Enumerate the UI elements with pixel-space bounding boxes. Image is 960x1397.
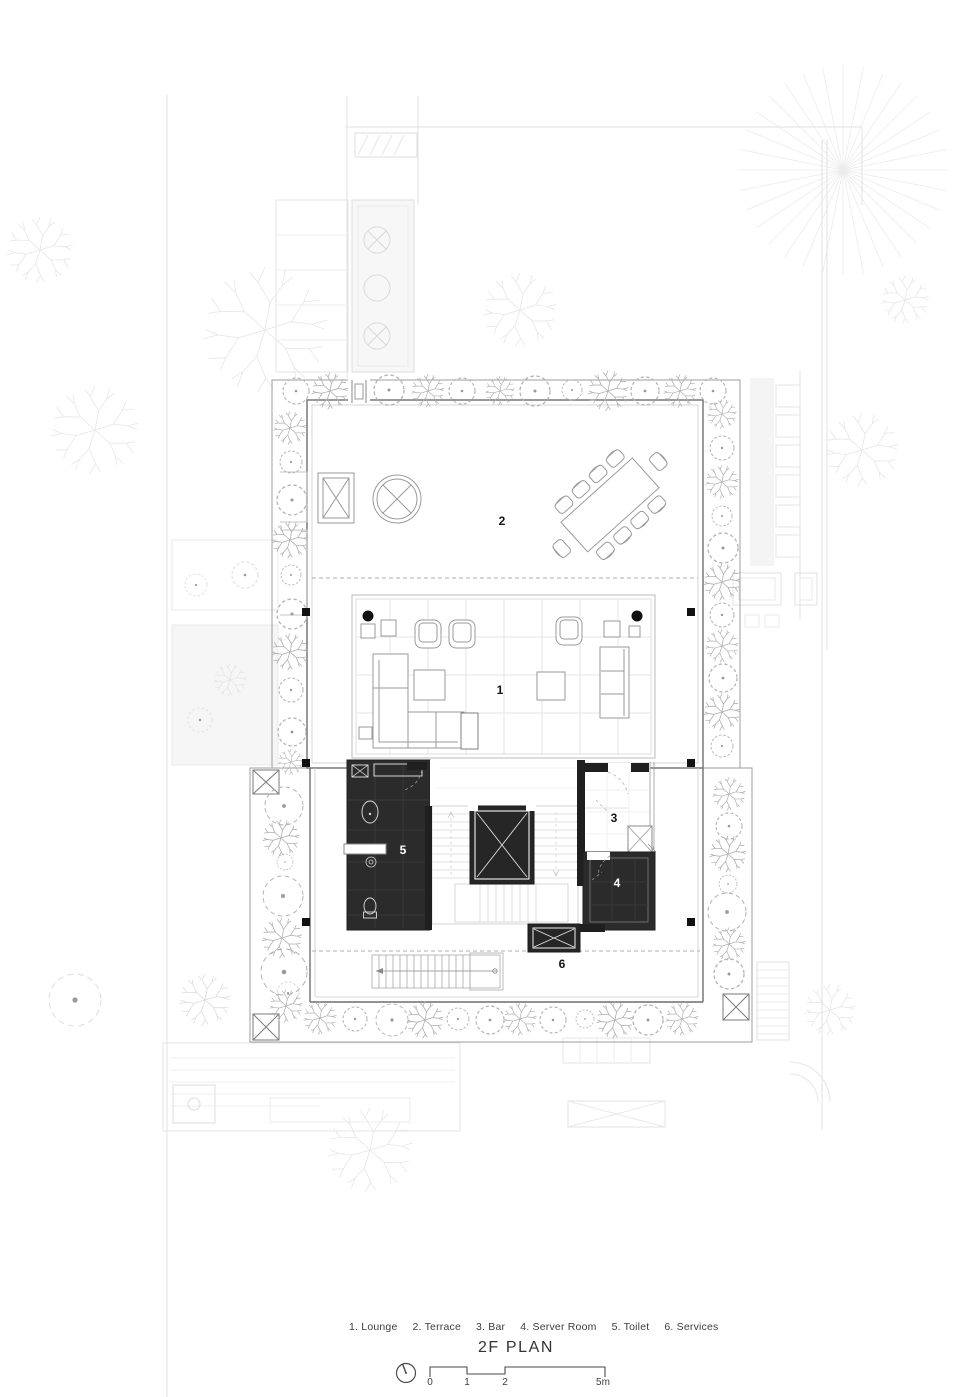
page-title: 2F PLAN	[72, 1339, 960, 1357]
column-dot	[632, 611, 643, 622]
floor-plan-drawing	[0, 0, 960, 1397]
legend-item-lounge: 1. Lounge	[349, 1321, 398, 1333]
column-dot	[363, 611, 374, 622]
scale-bar	[430, 1367, 605, 1377]
context-sunburst-tree	[697, 24, 960, 315]
room-label-server-room: 4	[614, 877, 621, 889]
room-label-services: 6	[559, 958, 566, 970]
legend-item-services: 6. Services	[664, 1321, 718, 1333]
legend-item-toilet: 5. Toilet	[612, 1321, 650, 1333]
sofa-right	[600, 647, 629, 718]
scale-tick-1: 1	[464, 1377, 470, 1388]
north-clock-icon	[397, 1364, 416, 1383]
room-label-lounge: 1	[497, 684, 504, 696]
room-label-bar: 3	[611, 812, 618, 824]
legend: 1. Lounge 2. Terrace 3. Bar 4. Server Ro…	[349, 1321, 719, 1333]
counter-fixture	[344, 844, 386, 854]
core-block	[344, 760, 656, 930]
room-label-toilet: 5	[400, 844, 407, 856]
scale-tick-0: 0	[427, 1377, 433, 1388]
room-label-terrace: 2	[499, 515, 506, 527]
server-room	[583, 852, 655, 930]
legend-item-bar: 3. Bar	[476, 1321, 505, 1333]
toilet-room	[344, 760, 430, 930]
stair-core	[407, 760, 585, 930]
scale-tick-2: 2	[502, 1377, 508, 1388]
bar-sink	[628, 826, 656, 852]
legend-item-server-room: 4. Server Room	[520, 1321, 596, 1333]
floor-plan-page: 1 2 3 4 5 6 1. Lounge 2. Terrace 3. Bar …	[0, 0, 960, 1397]
elevator-shaft	[468, 802, 536, 884]
legend-item-terrace: 2. Terrace	[413, 1321, 462, 1333]
scale-tick-5m: 5m	[596, 1377, 610, 1388]
